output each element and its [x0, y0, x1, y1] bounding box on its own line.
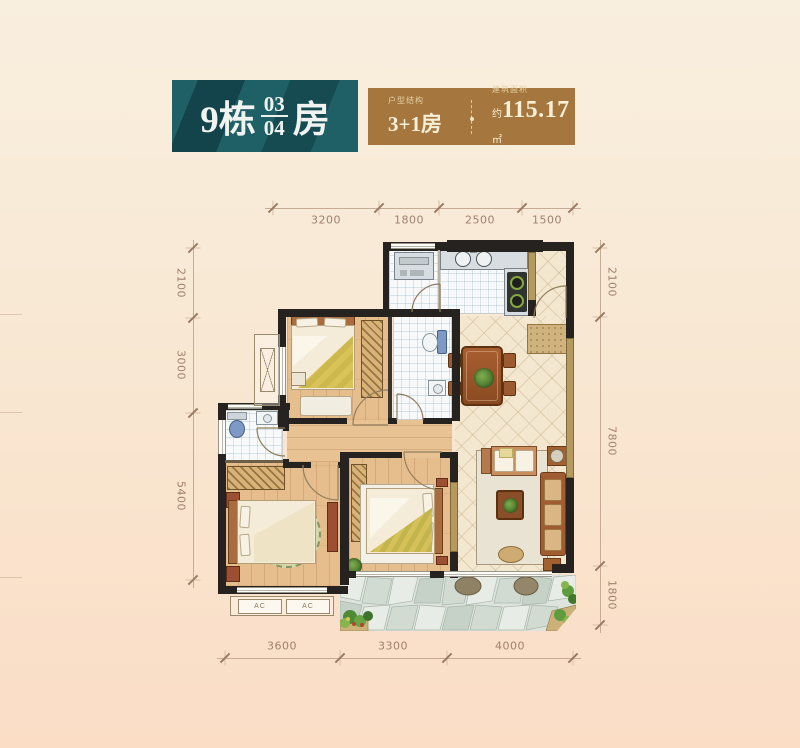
dim-top-3: 2500	[465, 214, 495, 227]
unit-suffix: 房	[293, 89, 330, 143]
dim-top-2: 1800	[394, 214, 424, 227]
master-door-arc	[303, 465, 338, 500]
dim-right-1: 2100	[606, 267, 619, 297]
bedroom2-door-arc	[404, 452, 442, 490]
unit-number-bottom: 04	[261, 117, 288, 139]
dim-line-bottom	[217, 658, 581, 659]
edge-guide-1	[0, 314, 22, 315]
dim-bottom-2: 3300	[378, 640, 408, 653]
dim-left-3: 5400	[175, 481, 188, 511]
bathroom2-door-arc	[257, 428, 285, 456]
bathroom1-door-arc	[397, 394, 423, 420]
edge-guide-2	[0, 412, 22, 413]
door-arcs	[0, 0, 800, 748]
unit-number-top: 03	[261, 93, 288, 117]
dim-bottom-1: 3600	[267, 640, 297, 653]
building-number: 9栋	[200, 89, 256, 143]
dim-bottom-3: 4000	[495, 640, 525, 653]
dim-left-1: 2100	[175, 268, 188, 298]
dim-line-top	[265, 208, 581, 209]
kitchen-door-arc	[412, 284, 440, 312]
dim-left-2: 3000	[175, 350, 188, 380]
floorplan-page: 9栋 03 04 房 户型结构 3+1房 建筑面积 约115.17㎡	[0, 0, 800, 748]
entry-door-arc	[534, 286, 566, 318]
dim-right-3: 1800	[606, 580, 619, 610]
dim-top-1: 3200	[311, 214, 341, 227]
dim-line-right	[600, 240, 601, 633]
edge-guide-3	[0, 577, 22, 578]
dim-right-2: 7800	[606, 426, 619, 456]
unit-fraction: 03 04	[261, 93, 288, 139]
dim-top-4: 1500	[532, 214, 562, 227]
bedroom1-door-arc	[353, 390, 388, 425]
